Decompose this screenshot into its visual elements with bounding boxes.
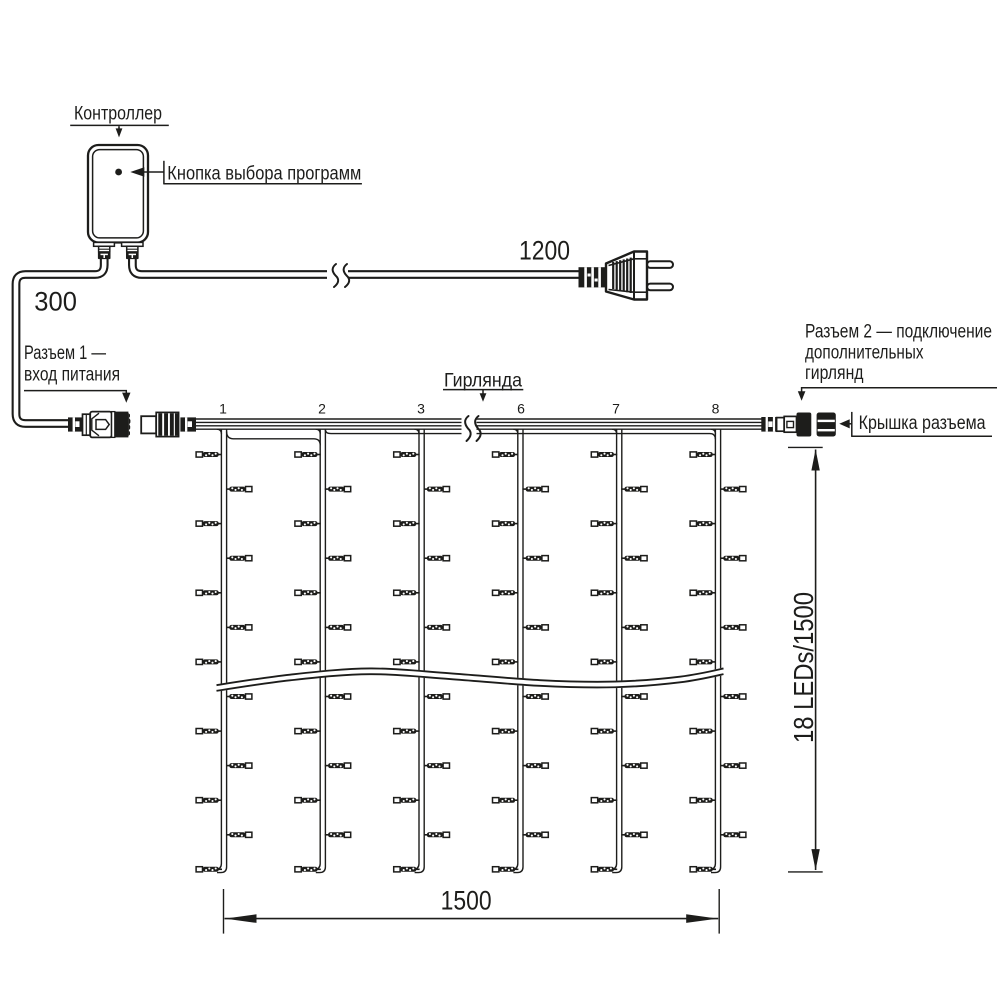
svg-text:1: 1 [219,400,227,416]
svg-text:гирлянд: гирлянд [805,363,864,384]
svg-text:1200: 1200 [519,235,570,265]
svg-text:300: 300 [34,287,77,317]
svg-text:Контроллер: Контроллер [74,103,162,124]
svg-text:3: 3 [417,400,425,416]
svg-text:Кнопка выбора программ: Кнопка выбора программ [167,163,361,184]
svg-text:Разъем 1 —: Разъем 1 — [24,343,106,364]
svg-text:2: 2 [318,400,326,416]
svg-text:7: 7 [612,400,620,416]
svg-text:6: 6 [517,400,525,416]
svg-text:Разъем 2 — подключение: Разъем 2 — подключение [805,322,992,343]
svg-text:1500: 1500 [441,886,492,916]
svg-text:8: 8 [712,400,720,416]
svg-text:вход питания: вход питания [24,364,120,385]
svg-text:Гирлянда: Гирлянда [444,370,522,391]
svg-text:18 LEDs/1500: 18 LEDs/1500 [788,592,819,743]
svg-text:дополнительных: дополнительных [805,342,924,363]
svg-text:Крышка разъема: Крышка разъема [859,413,986,434]
